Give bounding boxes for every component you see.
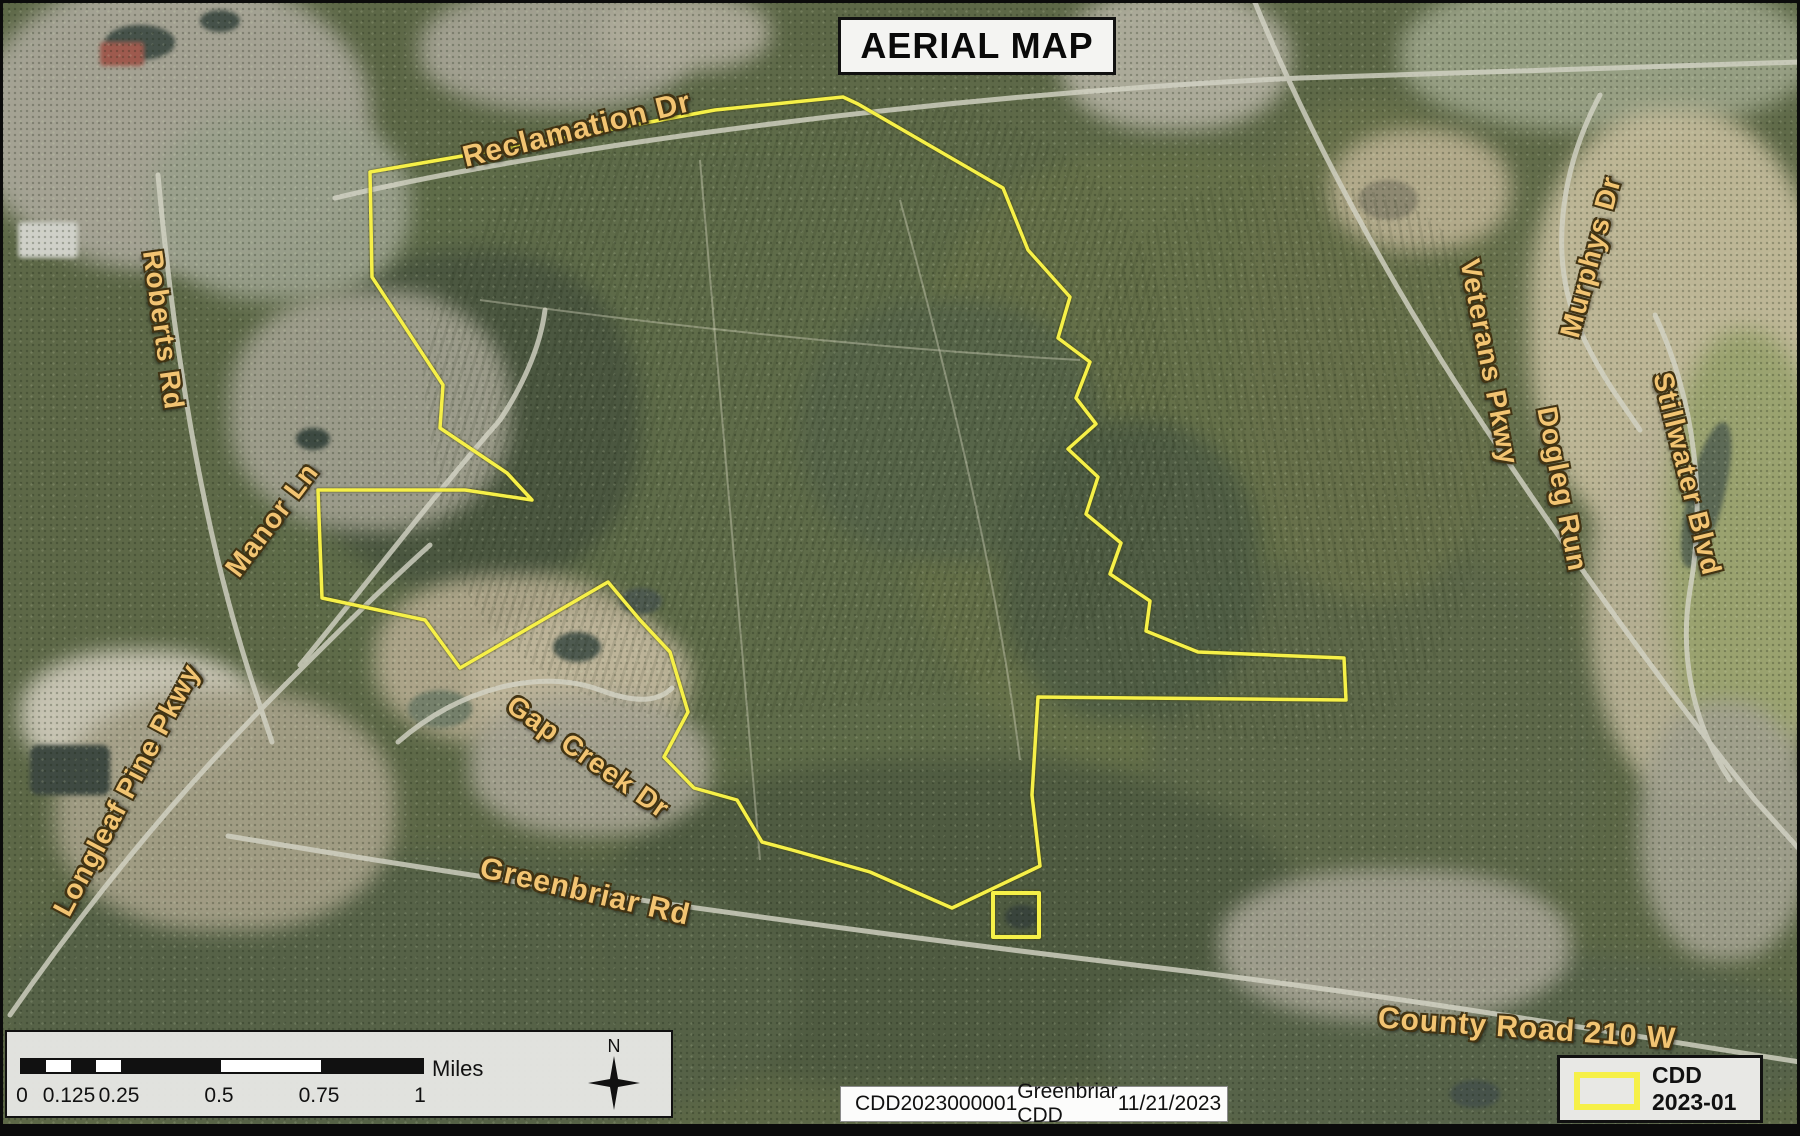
scale-unit-label: Miles <box>432 1056 483 1082</box>
scale-tick-label: 0 <box>16 1084 28 1108</box>
legend-item-label: CDD 2023-01 <box>1652 1062 1760 1116</box>
scale-tick-label: 0.125 <box>43 1084 96 1108</box>
aerial-map: Reclamation Dr Roberts Rd Manor Ln Longl… <box>0 0 1800 1136</box>
scale-segment <box>321 1060 422 1072</box>
scale-tick-label: 0.75 <box>299 1084 340 1108</box>
scale-bar: 0 0.125 0.25 0.5 0.75 1 Miles N <box>5 1030 673 1118</box>
info-district-name: Greenbriar CDD <box>1017 1080 1117 1128</box>
map-info-bar: CDD 2023000001 Greenbriar CDD 11/21/2023 <box>840 1086 1228 1122</box>
map-title: AERIAL MAP <box>838 17 1116 75</box>
scale-segment <box>221 1060 321 1072</box>
scale-segment <box>46 1060 71 1072</box>
scale-segment <box>96 1060 121 1072</box>
scale-tick-label: 0.5 <box>204 1084 233 1108</box>
scale-segment <box>121 1060 221 1072</box>
info-id: 2023000001 <box>901 1092 1018 1116</box>
scale-tick-label: 1 <box>414 1084 426 1108</box>
scale-segment <box>22 1060 46 1072</box>
compass-rose-icon <box>584 1054 644 1112</box>
info-date: 11/21/2023 <box>1118 1092 1222 1116</box>
legend: CDD 2023-01 <box>1557 1055 1763 1123</box>
scale-tick-label: 0.25 <box>99 1084 140 1108</box>
legend-swatch-cdd <box>1574 1072 1640 1110</box>
info-org: CDD <box>855 1092 901 1116</box>
scale-segment <box>71 1060 96 1072</box>
scale-bar-track <box>20 1058 424 1074</box>
tree-canopy-texture <box>0 0 1800 1136</box>
